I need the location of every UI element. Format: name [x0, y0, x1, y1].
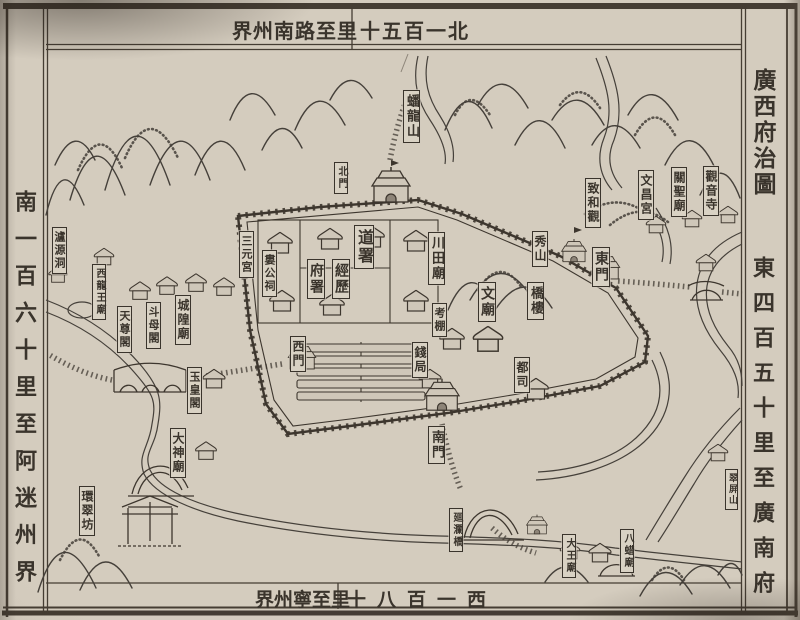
map-label-jing-li: 經歷: [332, 259, 350, 299]
map-label-east-gate: 東門: [592, 247, 610, 287]
map-label-xiu-shan: 秀山: [532, 231, 548, 267]
map-label-huilan-qiao: 廻瀾橋: [449, 508, 463, 552]
map-label-yuhuang-ge: 玉皇閣: [187, 367, 202, 414]
map-label-dashen-miao: 大神廟: [170, 428, 186, 478]
map-label-north-gate: 北門: [334, 162, 348, 194]
map-label-sanyuan-gong: 三元宮: [239, 231, 254, 278]
map-label-doumu-ge: 斗母閣: [146, 302, 161, 349]
map-label-wenchang-gong: 文昌宮: [638, 170, 654, 220]
map-label-fu-shu: 府署: [307, 259, 325, 299]
map-label-dawang-miao: 大王廟: [562, 534, 576, 578]
map-label-wen-miao: 文廟: [478, 282, 496, 322]
map-label-xilongwang-miao: 西龍王廟: [92, 264, 106, 320]
map-label-panlong-shan: 蟠龍山: [403, 90, 420, 143]
map-label-tianzun-ge: 天尊閣: [117, 306, 132, 353]
map-label-qian-ju: 錢局: [412, 342, 428, 378]
map-label-zhihe-guan: 致和觀: [585, 178, 601, 228]
map-label-lougong-ci: 婁公祠: [262, 250, 277, 297]
map-label-chuantian-miao: 川田廟: [428, 232, 445, 285]
map-label-kao-peng: 考棚: [432, 303, 447, 337]
map-label-qiao-lou: 橋樓: [527, 282, 544, 320]
map-label-guansheng-miao: 關聖廟: [671, 167, 687, 217]
scanned-map-photo: 界州南路至里 十五百一北 界州寧至里 十八百一西 南一百六十里至阿迷州界 廣西府…: [0, 0, 800, 620]
map-label-west-gate: 西門: [290, 336, 306, 372]
map-label-guanyin-si: 觀音寺: [703, 166, 719, 216]
map-label-bazha-miao: 八蜡廟: [620, 529, 634, 573]
map-label-huancui-fang: 環翠坊: [79, 486, 95, 536]
map-label-dao-shu: 道署: [354, 225, 374, 269]
map-label-chenghuang-miao: 城隍廟: [175, 295, 191, 345]
map-label-cuiping-shan: 翠屏山: [725, 469, 738, 510]
map-label-du-si: 都司: [514, 357, 530, 393]
map-label-luyuan-dong: 瀘源洞: [52, 227, 67, 274]
map-labels-layer: 蟠龍山北門致和觀文昌宮關聖廟觀音寺三元宮婁公祠道署府署經歷川田廟秀山橋樓東門文廟…: [0, 0, 800, 620]
map-label-south-gate: 南門: [428, 426, 445, 464]
